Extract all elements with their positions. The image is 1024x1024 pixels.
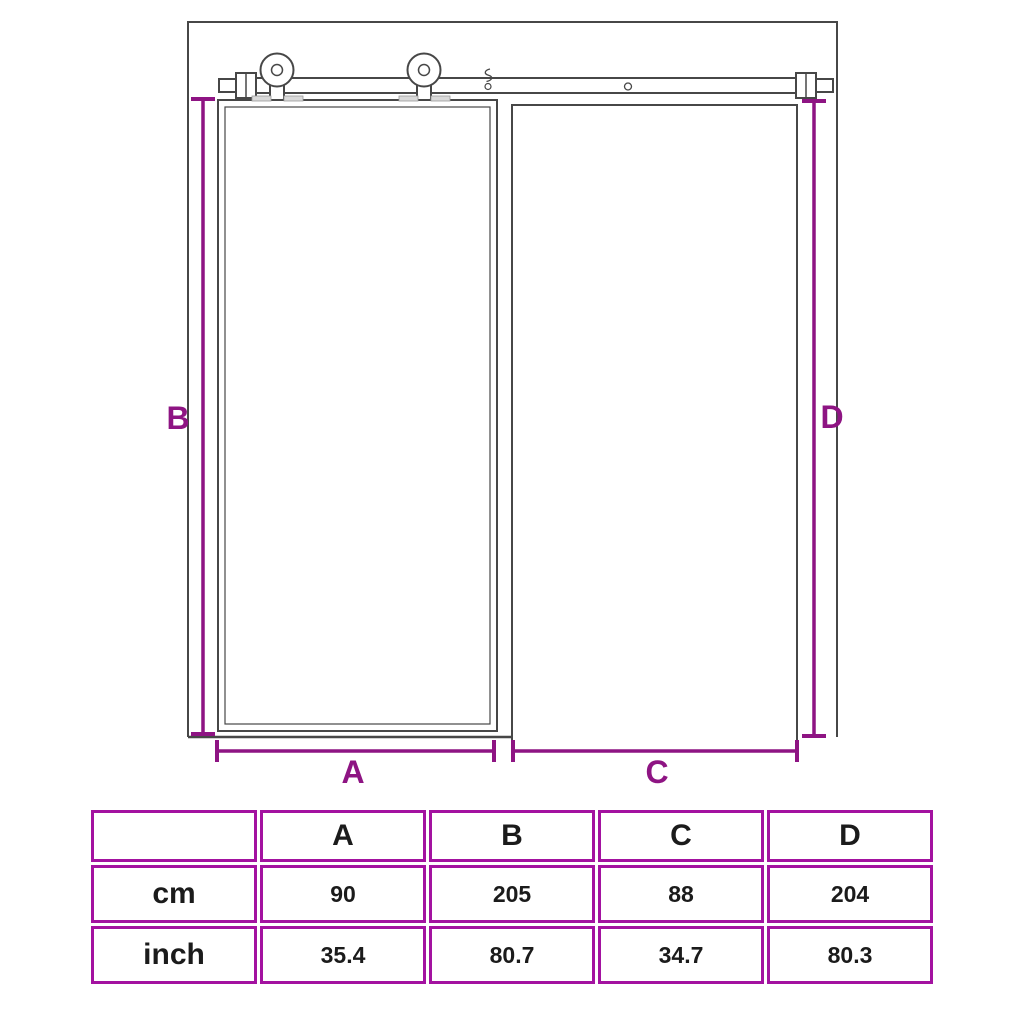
dim-label-b: B bbox=[166, 402, 189, 434]
door-top-tab bbox=[399, 96, 418, 101]
product-dimension-diagram: B D A C A B C D cm 90 205 88 204 inch 35 bbox=[0, 0, 1024, 1024]
door-panel bbox=[218, 100, 497, 731]
roller-axle-left bbox=[272, 65, 283, 76]
roller-axle-right bbox=[419, 65, 430, 76]
rail-right-end-cap bbox=[816, 79, 833, 92]
dimensions-table: A B C D cm 90 205 88 204 inch 35.4 80.7 … bbox=[88, 807, 936, 987]
table-row-inch: inch 35.4 80.7 34.7 80.3 bbox=[91, 926, 933, 984]
table-row-cm: cm 90 205 88 204 bbox=[91, 865, 933, 923]
value-inch-d: 80.3 bbox=[767, 926, 933, 984]
rail-bar bbox=[236, 78, 798, 93]
dimension-line-b bbox=[191, 99, 215, 734]
dim-label-c: C bbox=[645, 756, 668, 788]
column-header-d: D bbox=[767, 810, 933, 862]
column-header-b: B bbox=[429, 810, 595, 862]
corner-cell bbox=[91, 810, 257, 862]
doorway-opening bbox=[512, 105, 797, 740]
value-cm-a: 90 bbox=[260, 865, 426, 923]
dim-label-a: A bbox=[341, 756, 364, 788]
value-cm-b: 205 bbox=[429, 865, 595, 923]
dim-label-d: D bbox=[820, 401, 843, 433]
value-cm-d: 204 bbox=[767, 865, 933, 923]
rail-left-end-cap bbox=[219, 79, 236, 92]
column-header-c: C bbox=[598, 810, 764, 862]
door-top-tab bbox=[252, 96, 271, 101]
column-header-a: A bbox=[260, 810, 426, 862]
value-cm-c: 88 bbox=[598, 865, 764, 923]
unit-label-cm: cm bbox=[91, 865, 257, 923]
door-top-tab bbox=[431, 96, 450, 101]
value-inch-b: 80.7 bbox=[429, 926, 595, 984]
value-inch-c: 34.7 bbox=[598, 926, 764, 984]
unit-label-inch: inch bbox=[91, 926, 257, 984]
table-header-row: A B C D bbox=[91, 810, 933, 862]
door-top-tab bbox=[284, 96, 303, 101]
sliding-door-drawing bbox=[0, 0, 1024, 800]
value-inch-a: 35.4 bbox=[260, 926, 426, 984]
rail-bracket-screw bbox=[485, 84, 491, 90]
